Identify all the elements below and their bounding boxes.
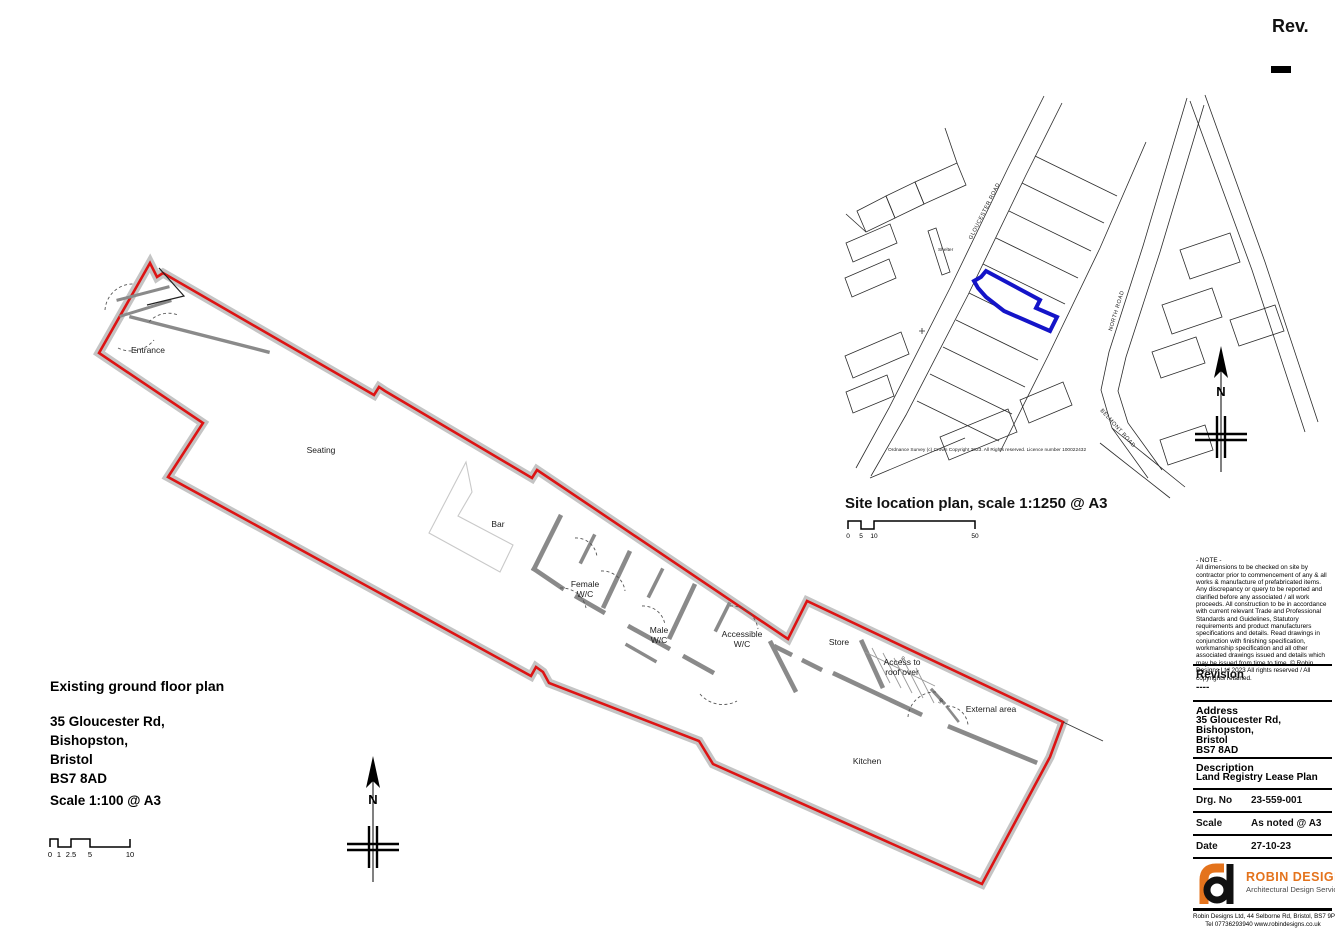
logo-monogram-icon [1196, 862, 1240, 906]
room-label-accessible-wc: Accessible W/C [722, 629, 763, 649]
divider [1193, 908, 1332, 911]
building-outline [99, 263, 1103, 884]
site-plan-copyright: Ordnance Survey (c) Crown Copyright 2023… [888, 448, 1086, 453]
plan-address-line1: 35 Gloucester Rd, [50, 712, 165, 731]
note-body: All dimensions to be checked on site by … [1196, 564, 1327, 666]
plan-bar-tick-2: 2.5 [66, 850, 76, 859]
plan-bar-tick-0: 0 [48, 850, 52, 859]
date-label: Date [1196, 841, 1218, 852]
room-label-male-wc: Male W/C [650, 625, 668, 645]
site-scale-bar [848, 521, 975, 529]
divider [1193, 788, 1332, 790]
drg-no-label: Drg. No [1196, 795, 1232, 806]
logo: ROBIN DESIGNS Architectural Design Servi… [1196, 862, 1333, 906]
divider [1193, 811, 1332, 813]
description-value: Land Registry Lease Plan [1196, 773, 1331, 783]
room-label-store: Store [829, 637, 849, 647]
room-label-female-wc: Female W/C [571, 579, 599, 599]
logo-company: ROBIN DESIGNS [1246, 870, 1335, 884]
plan-bar-tick-3: 5 [88, 850, 92, 859]
site-bar-tick-0: 0 [846, 533, 850, 540]
date-value: 27-10-23 [1251, 841, 1291, 852]
room-label-bar: Bar [491, 519, 504, 529]
divider [1193, 757, 1332, 759]
footer-company-address: Robin Designs Ltd, 44 Selborne Rd, Brist… [1193, 913, 1333, 920]
divider [1193, 700, 1332, 702]
site-bar-tick-2: 10 [870, 533, 877, 540]
room-label-external-area: External area [966, 704, 1017, 714]
north-letter-plan: N [368, 792, 377, 807]
revision-label: Revision [1196, 669, 1331, 681]
plan-address-line3: Bristol [50, 750, 165, 769]
title-block: - NOTE - All dimensions to be checked on… [1193, 0, 1333, 938]
room-label-entrance: Entrance [131, 345, 165, 355]
plan-address-line2: Bishopston, [50, 731, 165, 750]
room-label-kitchen: Kitchen [853, 756, 881, 766]
site-bar-tick-3: 50 [971, 533, 978, 540]
scale-value: As noted @ A3 [1251, 818, 1322, 829]
scale-label: Scale [1196, 818, 1222, 829]
north-arrow-plan [347, 756, 399, 882]
plan-bar-tick-1: 1 [57, 850, 61, 859]
site-plan-title: Site location plan, scale 1:1250 @ A3 [845, 495, 1108, 512]
divider [1193, 834, 1332, 836]
plan-address-line4: BS7 8AD [50, 769, 165, 788]
drawing-sheet: Entrance Seating Bar Female W/C Male W/C… [0, 0, 1335, 938]
divider [1193, 857, 1332, 859]
logo-tagline: Architectural Design Services [1246, 885, 1335, 894]
plan-title: Existing ground floor plan [50, 678, 224, 694]
plan-bar-tick-4: 10 [126, 850, 134, 859]
room-label-seating: Seating [307, 445, 336, 455]
footer-contact: Tel 07736293940 www.robindesigns.co.uk [1193, 921, 1333, 928]
drg-no-value: 23-559-001 [1251, 795, 1302, 806]
plan-scale-label: Scale 1:100 @ A3 [50, 793, 161, 808]
address-line4: BS7 8AD [1196, 746, 1331, 756]
note-title: - NOTE - [1196, 557, 1222, 564]
site-bar-tick-1: 5 [859, 533, 863, 540]
map-shelter-label: Shelter [938, 248, 953, 253]
plan-address: 35 Gloucester Rd, Bishopston, Bristol BS… [50, 712, 165, 788]
plan-scale-bar [50, 839, 130, 847]
floor-plan-svg [0, 0, 1335, 938]
divider [1193, 664, 1332, 666]
revision-value: ---- [1196, 682, 1331, 693]
